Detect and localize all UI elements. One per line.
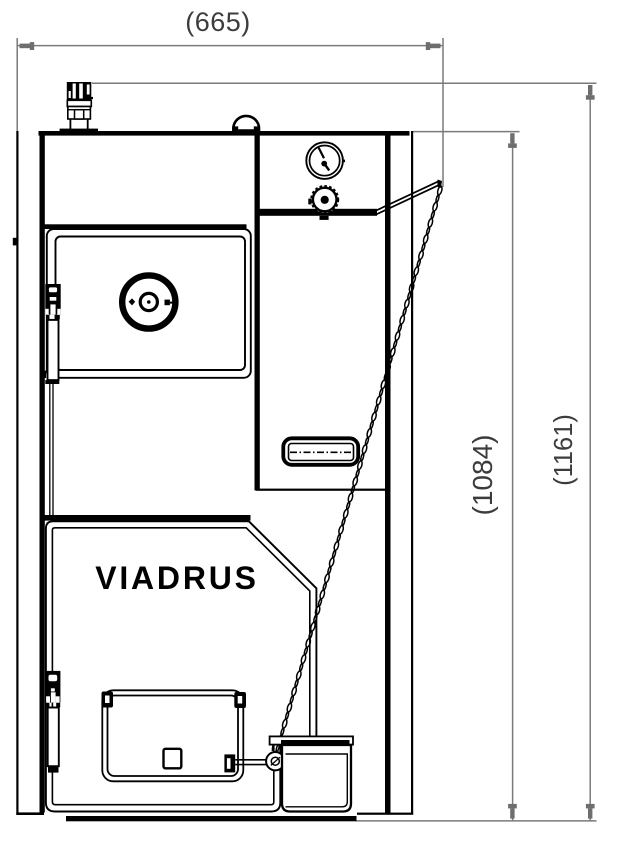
svg-text:(1084): (1084) xyxy=(467,435,498,516)
svg-text:(1161): (1161) xyxy=(550,414,578,486)
svg-text:VIADRUS: VIADRUS xyxy=(95,560,259,596)
svg-text:(665): (665) xyxy=(185,7,251,37)
